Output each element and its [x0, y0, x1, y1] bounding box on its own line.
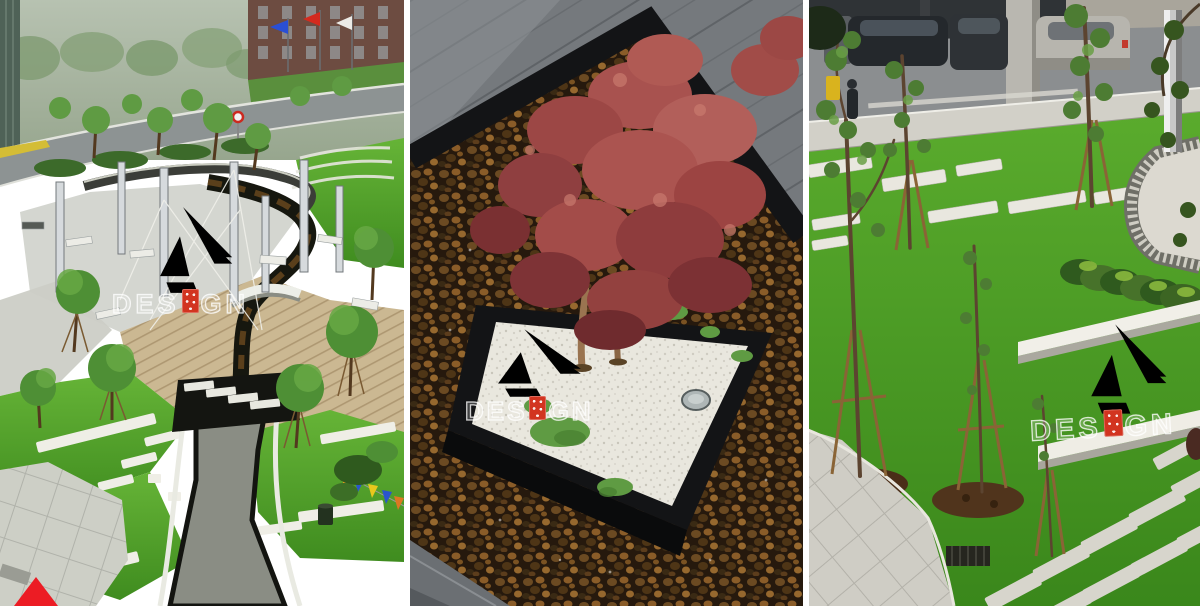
photo-maple-planter: DESGN — [410, 0, 803, 606]
glass-tower-edge — [0, 0, 20, 168]
glass-uplight — [682, 390, 710, 410]
photo-collage: DESGN — [0, 0, 1200, 606]
road-sign — [233, 112, 243, 122]
photo-aerial-park: DESGN — [0, 0, 404, 606]
photo-lawn-stepping-strips: DESGN — [808, 0, 1200, 606]
yellow-bin — [826, 76, 840, 100]
panel-divider — [404, 0, 410, 606]
pedestrian — [847, 79, 857, 89]
drain-grate — [946, 546, 990, 566]
stream-channel — [160, 372, 300, 606]
litter-bin — [318, 504, 333, 526]
panel-divider — [803, 0, 809, 606]
